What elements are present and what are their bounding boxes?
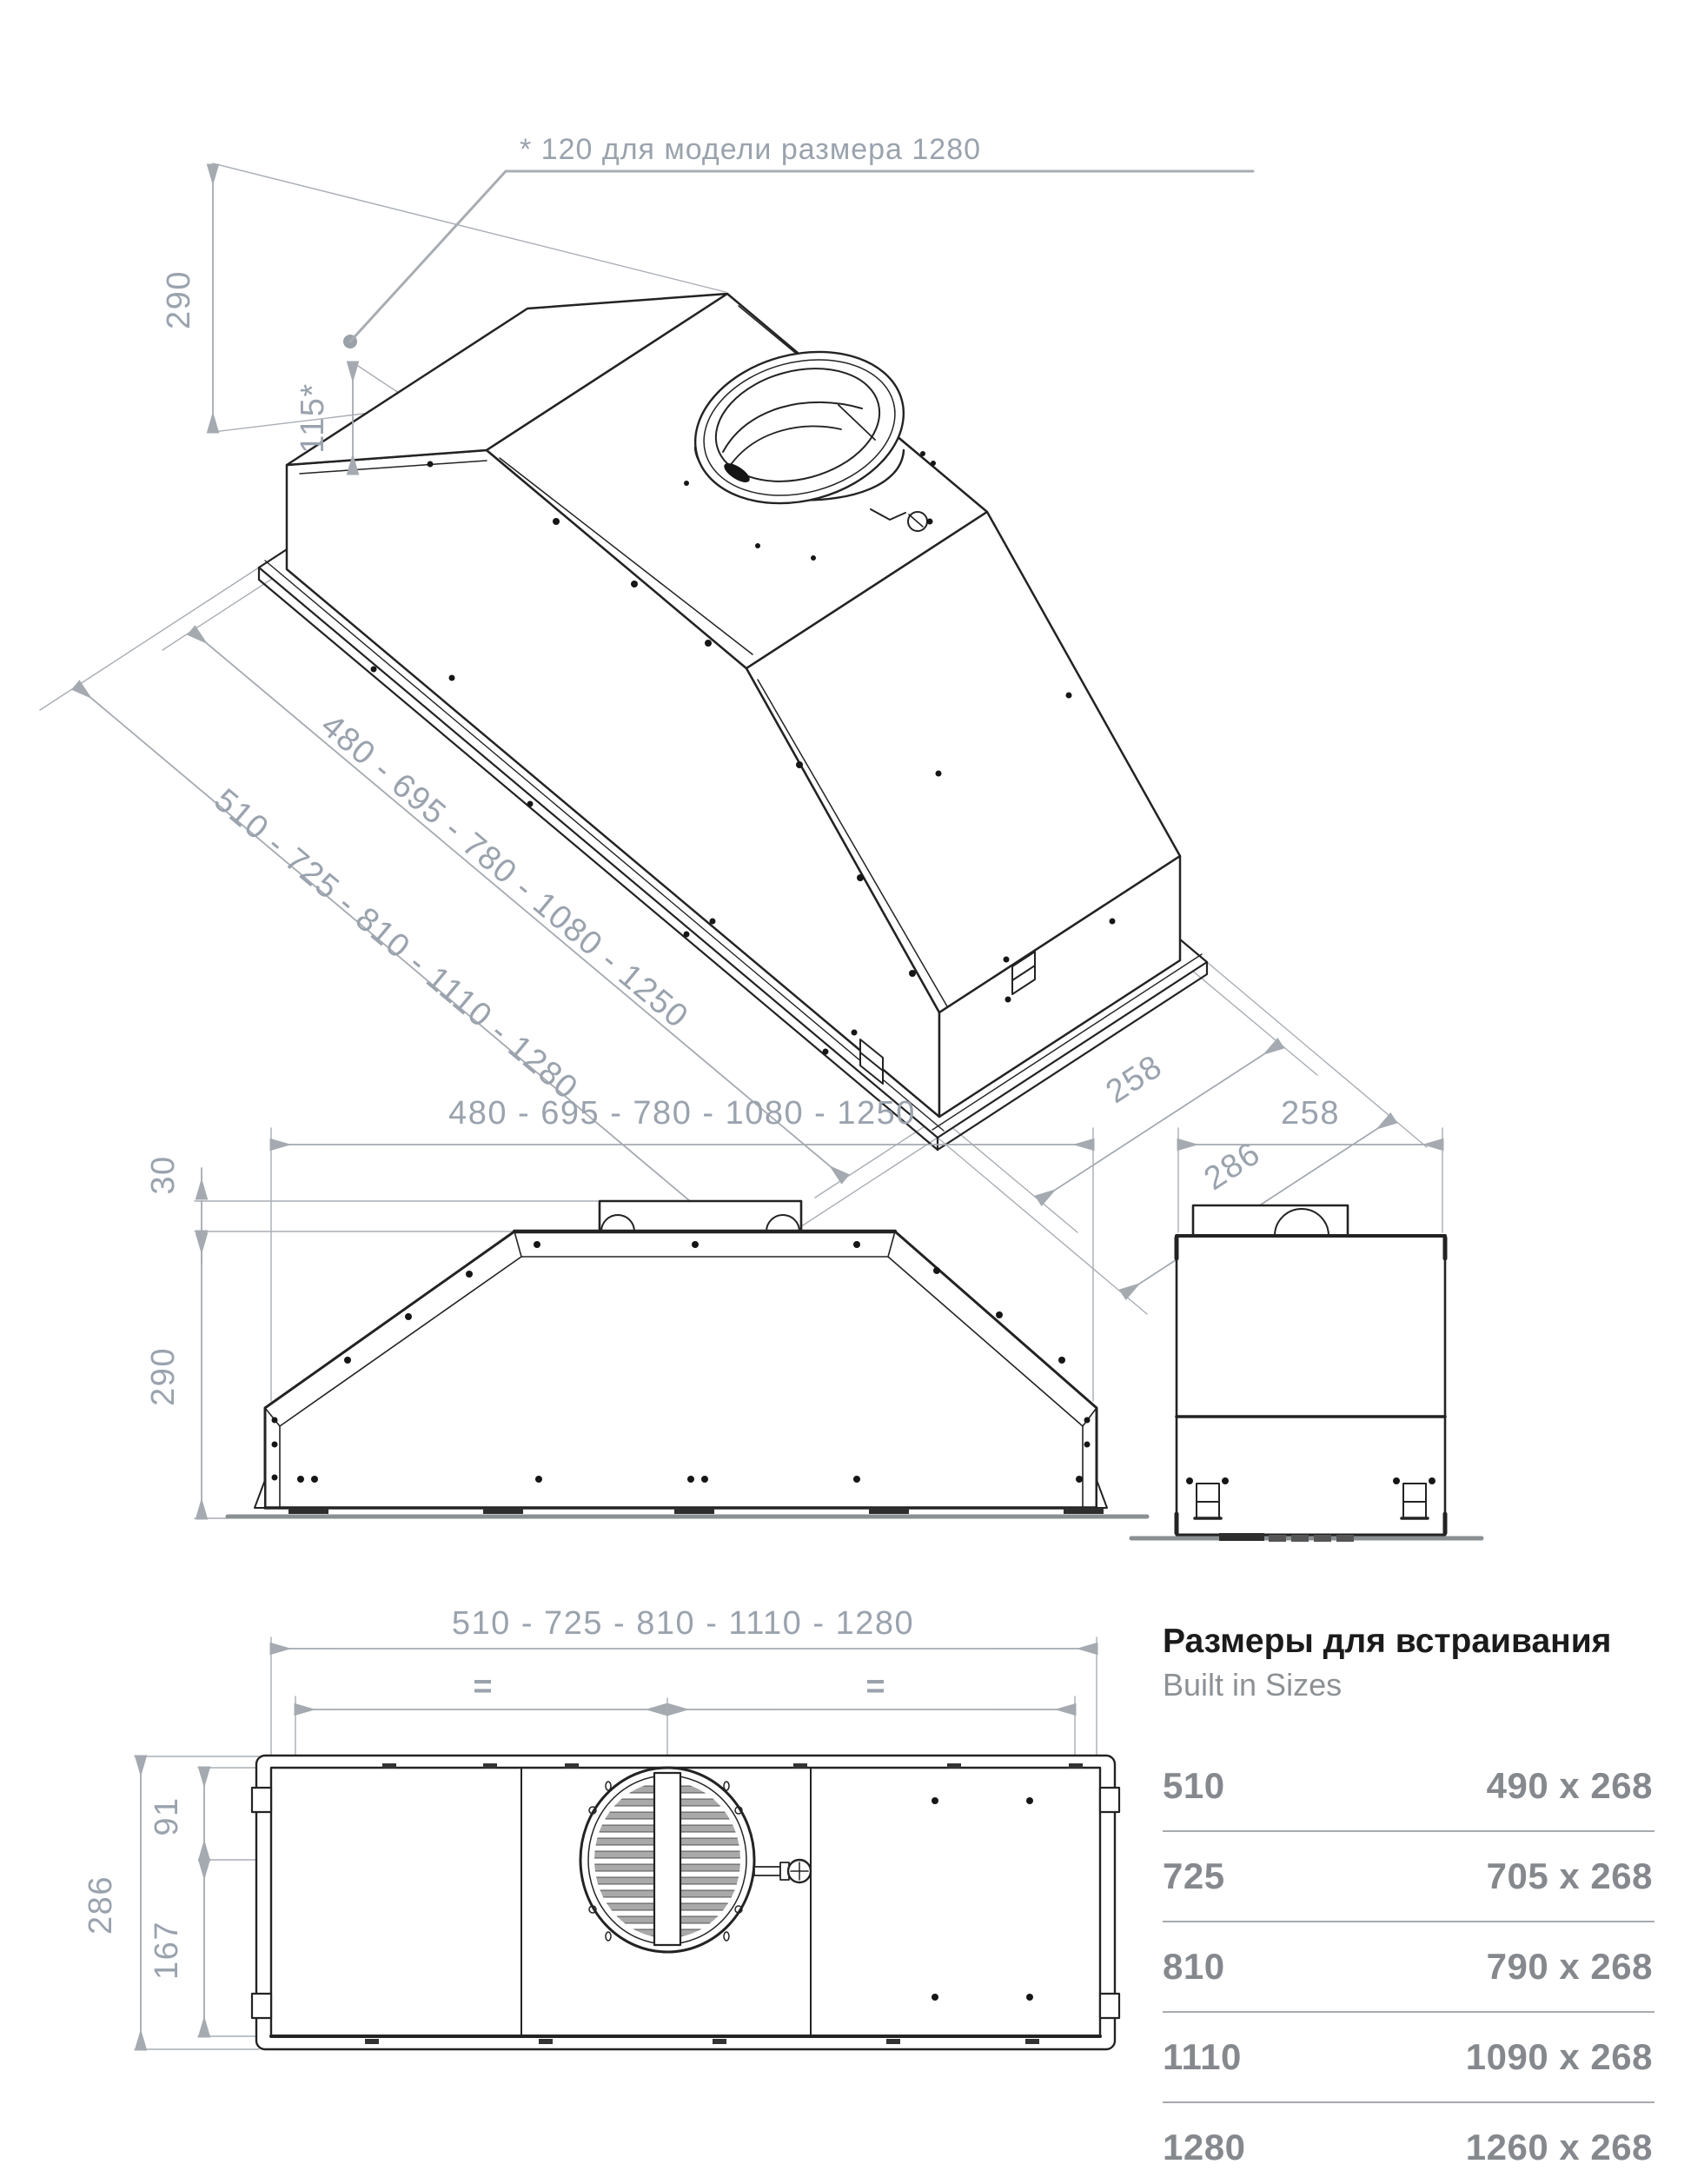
plan-view: 510 - 725 - 810 - 1110 - 1280 = = 91 167… [83,1605,1119,2049]
front-view: 480 - 695 - 780 - 1080 - 1250 30 290 [145,1095,1147,1518]
iso-dim-height2: 115* [295,382,331,453]
front-dim-width: 480 - 695 - 780 - 1080 - 1250 [448,1095,916,1132]
plan-dim-front: 91 [149,1796,185,1835]
hood-datasheet-page: * 120 для модели размера 1280 290 115* 4… [0,0,1704,2184]
model-cell: 1280 [1163,2127,1245,2168]
model-cell: 810 [1163,1946,1225,1988]
built-in-sizes-table: Размеры для встраивания Built in Sizes 5… [1163,1623,1654,2184]
plan-eq-left: = [473,1669,493,1705]
plan-dim-depth: 286 [83,1875,119,1935]
front-hood-outline [255,1201,1107,1508]
table-row: 1110 1090 x 268 [1163,2013,1654,2103]
plan-dim-back: 167 [149,1921,185,1980]
table-row: 810 790 x 268 [1163,1922,1654,2013]
table-row: 1280 1260 x 268 [1163,2103,1654,2184]
iso-dim-depth: 258 [1100,1048,1170,1111]
size-cell: 1260 x 268 [1466,2127,1653,2168]
size-cell: 1090 x 268 [1466,2036,1653,2078]
iso-dim-length-inner: 510 - 725 - 810 - 1110 - 1280 [207,782,585,1107]
side-dim-depth: 258 [1281,1095,1340,1132]
size-cell: 790 x 268 [1487,1946,1653,1988]
front-dim-collar: 30 [145,1155,182,1194]
note-leader: * 120 для модели размера 1280 [343,133,1253,349]
model-cell: 1110 [1163,2036,1242,2078]
front-dim-height: 290 [145,1347,182,1406]
note-text: * 120 для модели размера 1280 [520,133,981,166]
iso-dim-height: 290 [161,270,197,329]
fan-center-bar [654,1773,680,1945]
table-title-en: Built in Sizes [1163,1668,1654,1703]
size-cell: 705 x 268 [1487,1855,1653,1897]
model-cell: 725 [1163,1855,1225,1897]
table-row: 725 705 x 268 [1163,1832,1654,1922]
iso-view: * 120 для модели размера 1280 290 115* 4… [40,133,1427,1314]
size-cell: 490 x 268 [1487,1765,1653,1807]
table-row: 510 490 x 268 [1163,1742,1654,1832]
table-rows: 510 490 x 268 725 705 x 268 810 790 x 26… [1163,1742,1654,2184]
table-title-ru: Размеры для встраивания [1163,1623,1654,1661]
plan-dim-width: 510 - 725 - 810 - 1110 - 1280 [452,1605,914,1642]
side-view: 258 [1131,1095,1482,1542]
model-cell: 510 [1163,1765,1225,1807]
plan-eq-right: = [865,1669,885,1705]
